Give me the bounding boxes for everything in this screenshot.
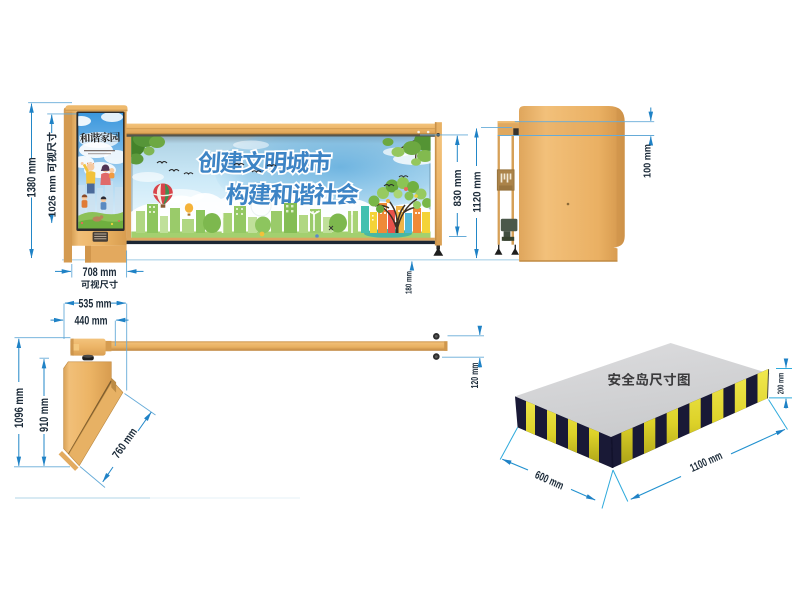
svg-text:200 mm: 200 mm bbox=[776, 372, 786, 394]
svg-text:1026 mm: 1026 mm bbox=[48, 175, 59, 217]
svg-text:180 mm: 180 mm bbox=[403, 271, 413, 294]
svg-text:600 mm: 600 mm bbox=[533, 469, 565, 492]
svg-text:1120 mm: 1120 mm bbox=[471, 171, 483, 212]
svg-text:708 mm: 708 mm bbox=[83, 265, 117, 279]
svg-text:1380 mm: 1380 mm bbox=[27, 158, 39, 198]
svg-text:120 mm: 120 mm bbox=[470, 362, 481, 388]
svg-text:910 mm: 910 mm bbox=[39, 398, 51, 432]
svg-text:100 mm: 100 mm bbox=[641, 144, 653, 178]
svg-text:440 mm: 440 mm bbox=[75, 314, 108, 328]
svg-text:1100 mm: 1100 mm bbox=[688, 450, 724, 475]
svg-text:760 mm: 760 mm bbox=[111, 426, 140, 461]
svg-text:830 mm: 830 mm bbox=[452, 169, 464, 206]
svg-text:1096 mm: 1096 mm bbox=[14, 388, 26, 428]
svg-text:535 mm: 535 mm bbox=[79, 296, 112, 310]
